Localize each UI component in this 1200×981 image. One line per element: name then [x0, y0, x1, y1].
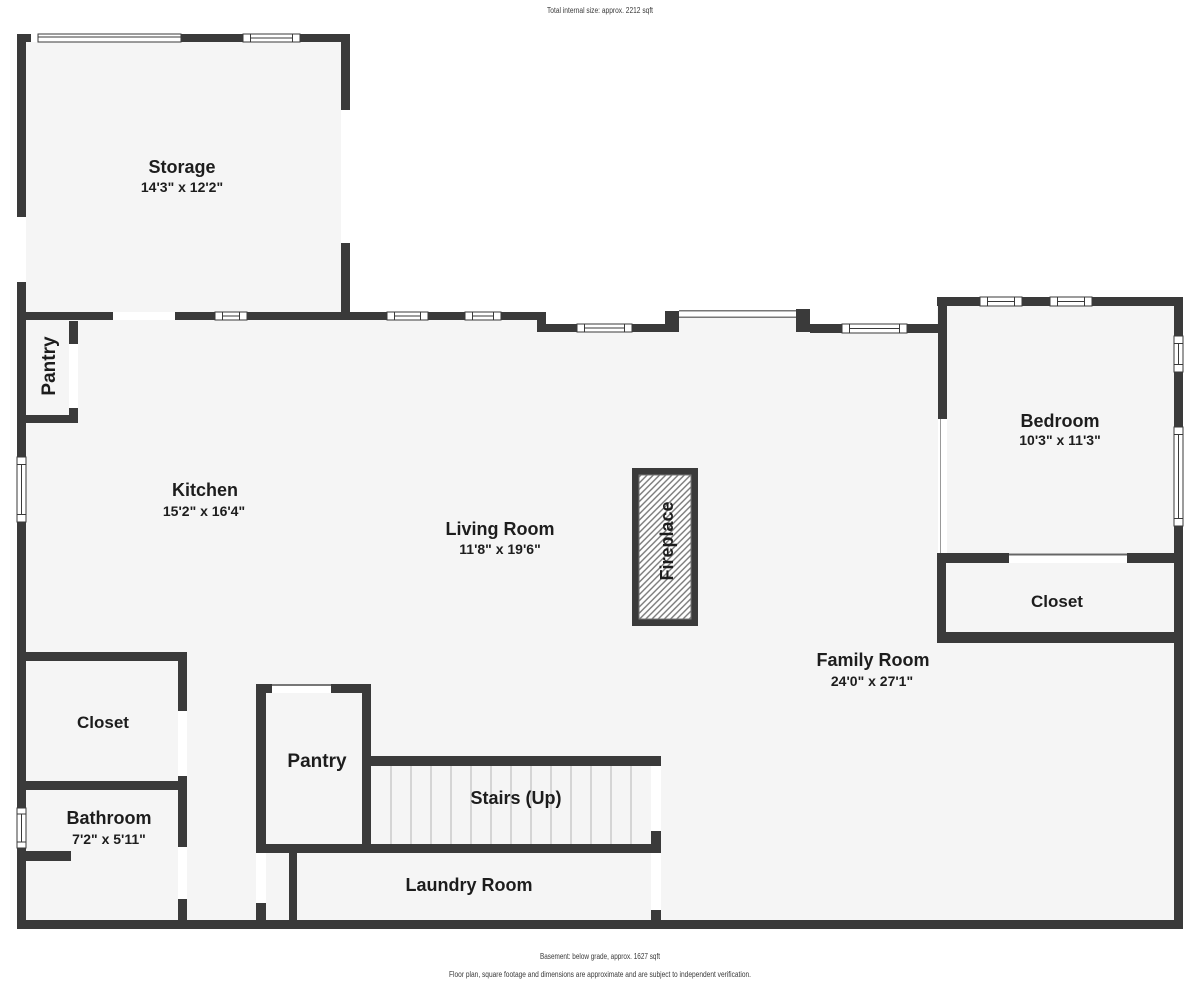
svg-text:Stairs (Up): Stairs (Up) [470, 788, 561, 808]
svg-text:7'2" x 5'11": 7'2" x 5'11" [72, 831, 146, 847]
svg-text:Basement: below grade, approx.: Basement: below grade, approx. 1627 sqft [540, 952, 661, 961]
svg-text:Living Room: Living Room [446, 519, 555, 539]
svg-text:Storage: Storage [148, 157, 215, 177]
svg-text:Bedroom: Bedroom [1020, 411, 1099, 431]
svg-text:24'0" x 27'1": 24'0" x 27'1" [831, 673, 913, 689]
svg-text:10'3" x 11'3": 10'3" x 11'3" [1019, 432, 1100, 448]
svg-text:Closet: Closet [77, 713, 129, 732]
svg-text:Floor plan, square footage and: Floor plan, square footage and dimension… [449, 970, 751, 979]
svg-text:Fireplace: Fireplace [657, 501, 677, 580]
svg-text:11'8" x 19'6": 11'8" x 19'6" [459, 541, 540, 557]
svg-text:Kitchen: Kitchen [172, 480, 238, 500]
svg-text:Family Room: Family Room [816, 650, 929, 670]
svg-text:Bathroom: Bathroom [67, 808, 152, 828]
svg-text:Pantry: Pantry [287, 751, 347, 772]
svg-text:Total internal size: approx. 2: Total internal size: approx. 2212 sqft [547, 6, 654, 15]
svg-text:14'3" x 12'2": 14'3" x 12'2" [141, 179, 223, 195]
svg-text:Closet: Closet [1031, 592, 1083, 611]
svg-text:Pantry: Pantry [39, 336, 60, 396]
svg-text:15'2" x 16'4": 15'2" x 16'4" [163, 503, 245, 519]
svg-text:Laundry Room: Laundry Room [405, 875, 532, 895]
